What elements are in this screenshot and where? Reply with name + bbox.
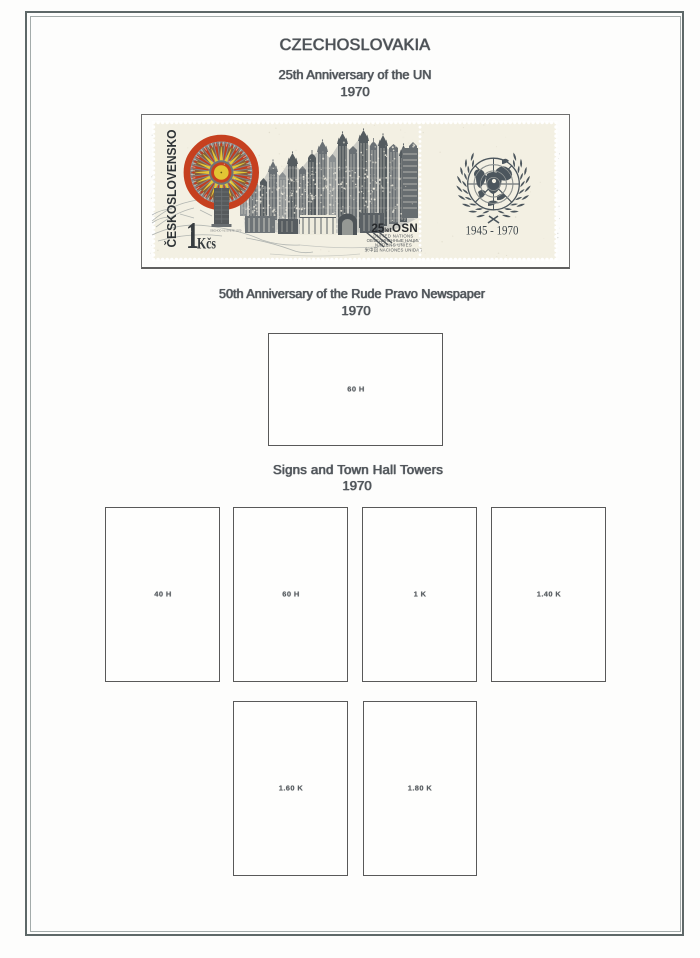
- svg-text:ČESKOSLOVENSKO: ČESKOSLOVENSKO: [164, 130, 179, 248]
- svg-text:1945 - 1970: 1945 - 1970: [466, 224, 519, 238]
- svg-text:米中回 NACIONES UNIDAS: 米中回 NACIONES UNIDAS: [365, 246, 423, 253]
- svg-text:OBCHOD VE SVETE 1970: OBCHOD VE SVETE 1970: [210, 229, 242, 233]
- svg-text:Kčs: Kčs: [197, 236, 216, 253]
